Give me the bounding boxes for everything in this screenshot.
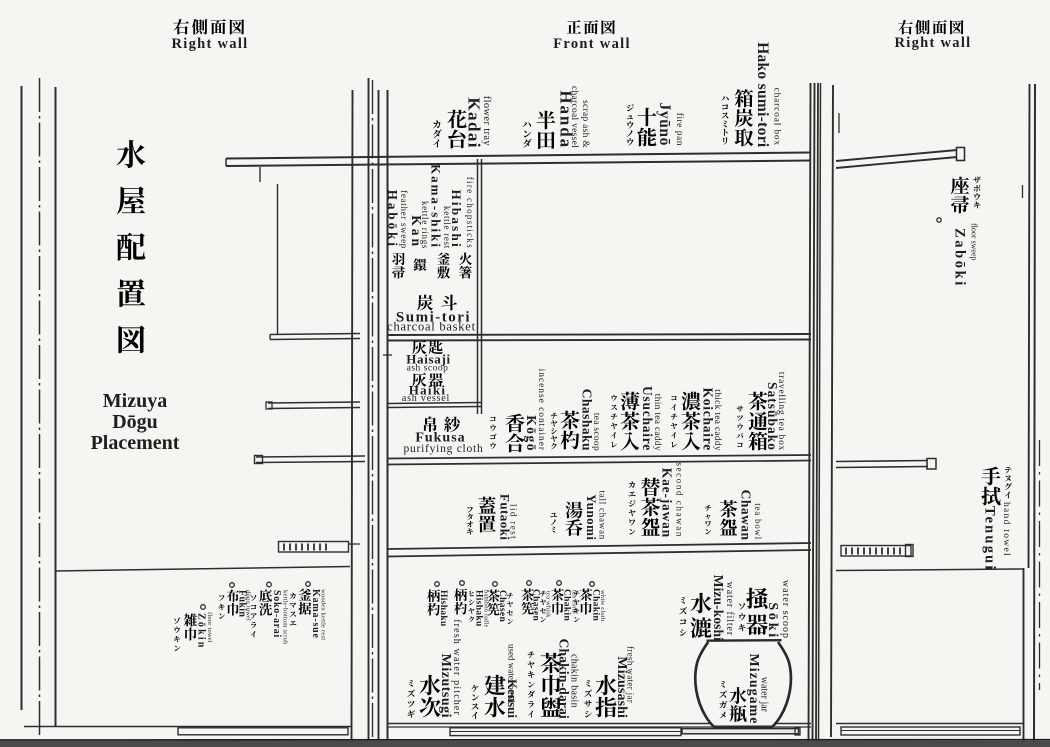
svg-text:Zabōki: Zabōki xyxy=(952,228,968,288)
svg-text:water scoop: water scoop xyxy=(780,580,791,639)
svg-text:Hibashi: Hibashi xyxy=(449,190,464,249)
svg-text:Hishaku: Hishaku xyxy=(438,590,448,627)
svg-text:fire chopsticks: fire chopsticks xyxy=(465,177,475,249)
svg-text:flower tray: flower tray xyxy=(481,96,492,147)
svg-text:fire pan: fire pan xyxy=(674,113,685,146)
svg-text:fresh water jar: fresh water jar xyxy=(625,646,635,703)
svg-text:kettle-bottom scrub: kettle-bottom scrub xyxy=(282,590,289,645)
svg-text:Mizuya: Mizuya xyxy=(103,390,167,412)
svg-text:Hishaku: Hishaku xyxy=(474,590,484,627)
svg-text:Kama-shiki: Kama-shiki xyxy=(429,164,444,249)
svg-text:Sōki: Sōki xyxy=(765,602,780,640)
svg-text:floor sweep: floor sweep xyxy=(970,223,979,261)
svg-text:lid rest: lid rest xyxy=(508,504,518,540)
svg-text:bamboo ladle: bamboo ladle xyxy=(483,590,490,628)
svg-text:Zōkin: Zōkin xyxy=(196,613,207,650)
svg-text:thin tea caddy: thin tea caddy xyxy=(652,394,662,451)
svg-text:incense container: incense container xyxy=(536,369,546,451)
svg-text:Chakin: Chakin xyxy=(562,589,572,621)
svg-text:Jyūnō: Jyūnō xyxy=(656,103,673,147)
svg-text:Yunomi: Yunomi xyxy=(584,494,599,540)
svg-text:charcoal basket: charcoal basket xyxy=(387,320,476,334)
svg-text:kettle rings: kettle rings xyxy=(420,201,430,249)
svg-text:Chawan: Chawan xyxy=(739,490,754,541)
svg-text:chakin basin: chakin basin xyxy=(569,654,580,708)
svg-text:Hako sumi-tori: Hako sumi-tori xyxy=(754,42,771,148)
svg-text:Mizutsugi: Mizutsugi xyxy=(438,654,453,718)
svg-text:thick tea caddy: thick tea caddy xyxy=(712,389,722,451)
svg-text:water jar: water jar xyxy=(759,677,770,713)
svg-text:water filter: water filter xyxy=(724,582,735,636)
svg-text:Right wall: Right wall xyxy=(894,35,971,51)
svg-text:used water bowl: used water bowl xyxy=(506,644,516,703)
svg-text:Habōki: Habōki xyxy=(386,190,401,249)
svg-text:Kae-jawan: Kae-jawan xyxy=(660,468,675,538)
svg-text:tea scoop: tea scoop xyxy=(591,413,601,451)
svg-text:white cloth: white cloth xyxy=(599,590,606,622)
svg-text:Placement: Placement xyxy=(91,432,180,454)
svg-text:Tenugui: Tenugui xyxy=(982,506,998,572)
svg-text:Dōgu: Dōgu xyxy=(112,411,158,433)
svg-text:travelling tea box: travelling tea box xyxy=(776,372,786,451)
svg-text:ash vessel: ash vessel xyxy=(402,393,450,404)
svg-text:hand towel: hand towel xyxy=(1001,502,1011,557)
svg-text:dōgu towel: dōgu towel xyxy=(245,590,252,621)
svg-text:Chasen: Chasen xyxy=(497,590,507,622)
svg-text:charcoal box: charcoal box xyxy=(772,88,782,146)
svg-text:feather sweep: feather sweep xyxy=(399,190,409,249)
svg-text:Front wall: Front wall xyxy=(553,36,631,52)
svg-text:Kadai: Kadai xyxy=(464,97,483,149)
svg-text:floor towel: floor towel xyxy=(206,612,213,643)
svg-text:Mizu-koshi: Mizu-koshi xyxy=(711,575,726,641)
svg-text:Right wall: Right wall xyxy=(171,36,248,52)
svg-text:tea whisk: tea whisk xyxy=(545,591,552,618)
svg-text:ash scoop: ash scoop xyxy=(407,364,449,374)
svg-text:fresh water pitcher: fresh water pitcher xyxy=(451,619,462,716)
svg-text:Soko-arai: Soko-arai xyxy=(271,590,282,638)
svg-text:Kama-sue: Kama-sue xyxy=(310,589,321,639)
svg-text:purifying cloth: purifying cloth xyxy=(404,443,484,455)
svg-text:second chawan: second chawan xyxy=(674,462,684,538)
svg-text:Chasen: Chasen xyxy=(531,589,541,621)
svg-text:tall chawan: tall chawan xyxy=(597,491,607,540)
svg-text:tea bowl: tea bowl xyxy=(753,503,763,540)
svg-text:wooden kettle rest: wooden kettle rest xyxy=(320,589,327,640)
